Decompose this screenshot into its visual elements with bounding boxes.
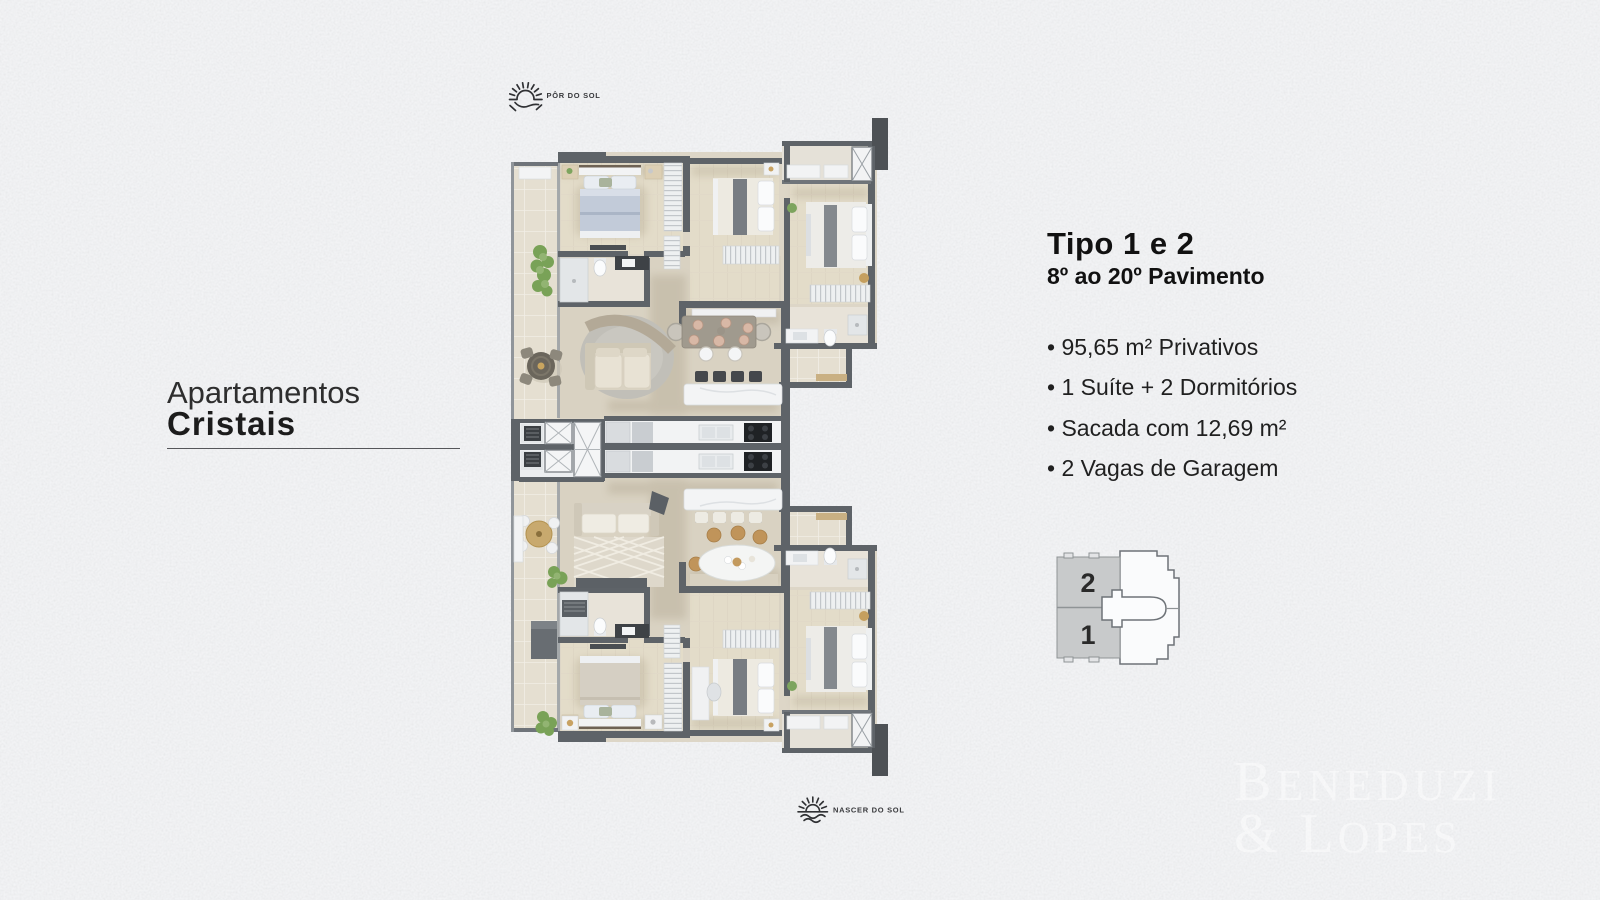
svg-text:& LOPES: & LOPES (1234, 803, 1461, 865)
svg-text:NASCER DO SOL: NASCER DO SOL (833, 806, 905, 815)
svg-text:PÔR DO SOL: PÔR DO SOL (547, 91, 601, 100)
svg-text:1: 1 (1080, 620, 1095, 650)
svg-text:2: 2 (1080, 568, 1095, 598)
